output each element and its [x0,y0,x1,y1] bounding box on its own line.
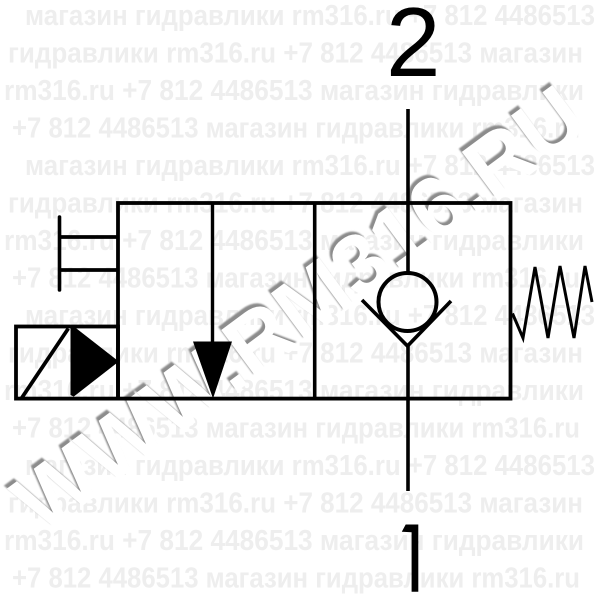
svg-text:магазин гидравлики rm316.ru +7: магазин гидравлики rm316.ru +7 812 44865… [25,0,595,32]
svg-text:+7 812 4486513 магазин гидравл: +7 812 4486513 магазин гидравлики rm316.… [12,563,580,595]
svg-text:гидравлики rm316.ru +7 812 448: гидравлики rm316.ru +7 812 4486513 магаз… [8,38,583,70]
svg-text:rm316.ru +7 812 4486513 магази: rm316.ru +7 812 4486513 магазин гидравли… [4,525,584,557]
svg-text:2: 2 [386,0,441,97]
